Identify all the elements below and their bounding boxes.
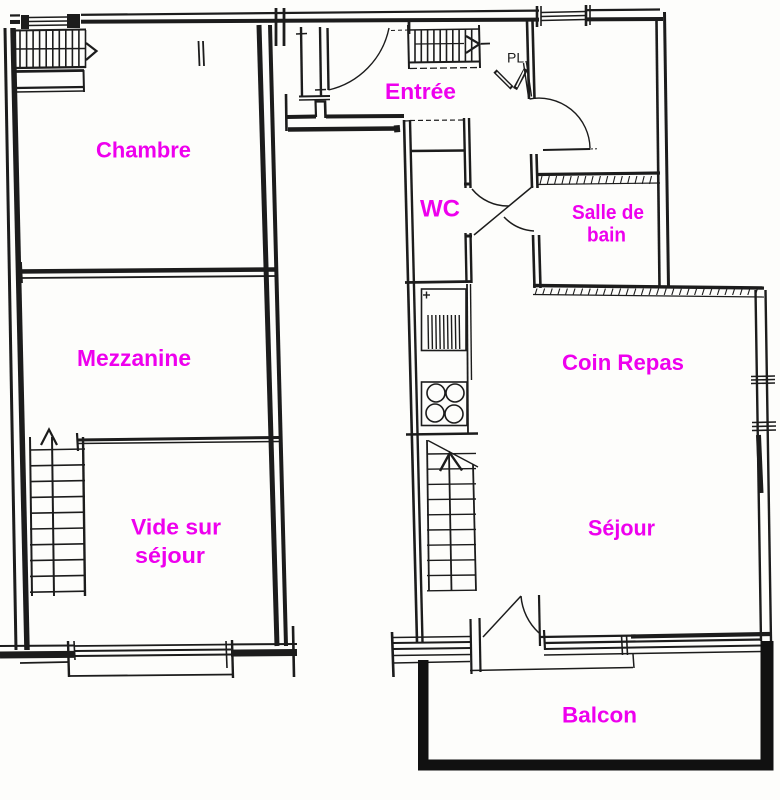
svg-text:WC: WC [420, 196, 460, 223]
svg-text:Chambre: Chambre [96, 138, 191, 163]
svg-text:Balcon: Balcon [562, 703, 637, 728]
svg-text:Séjour: Séjour [588, 516, 655, 541]
svg-text:Coin Repas: Coin Repas [562, 350, 684, 375]
svg-text:Entrée: Entrée [385, 79, 456, 104]
svg-text:PL.: PL. [507, 51, 528, 66]
svg-text:Mezzanine: Mezzanine [77, 345, 191, 371]
